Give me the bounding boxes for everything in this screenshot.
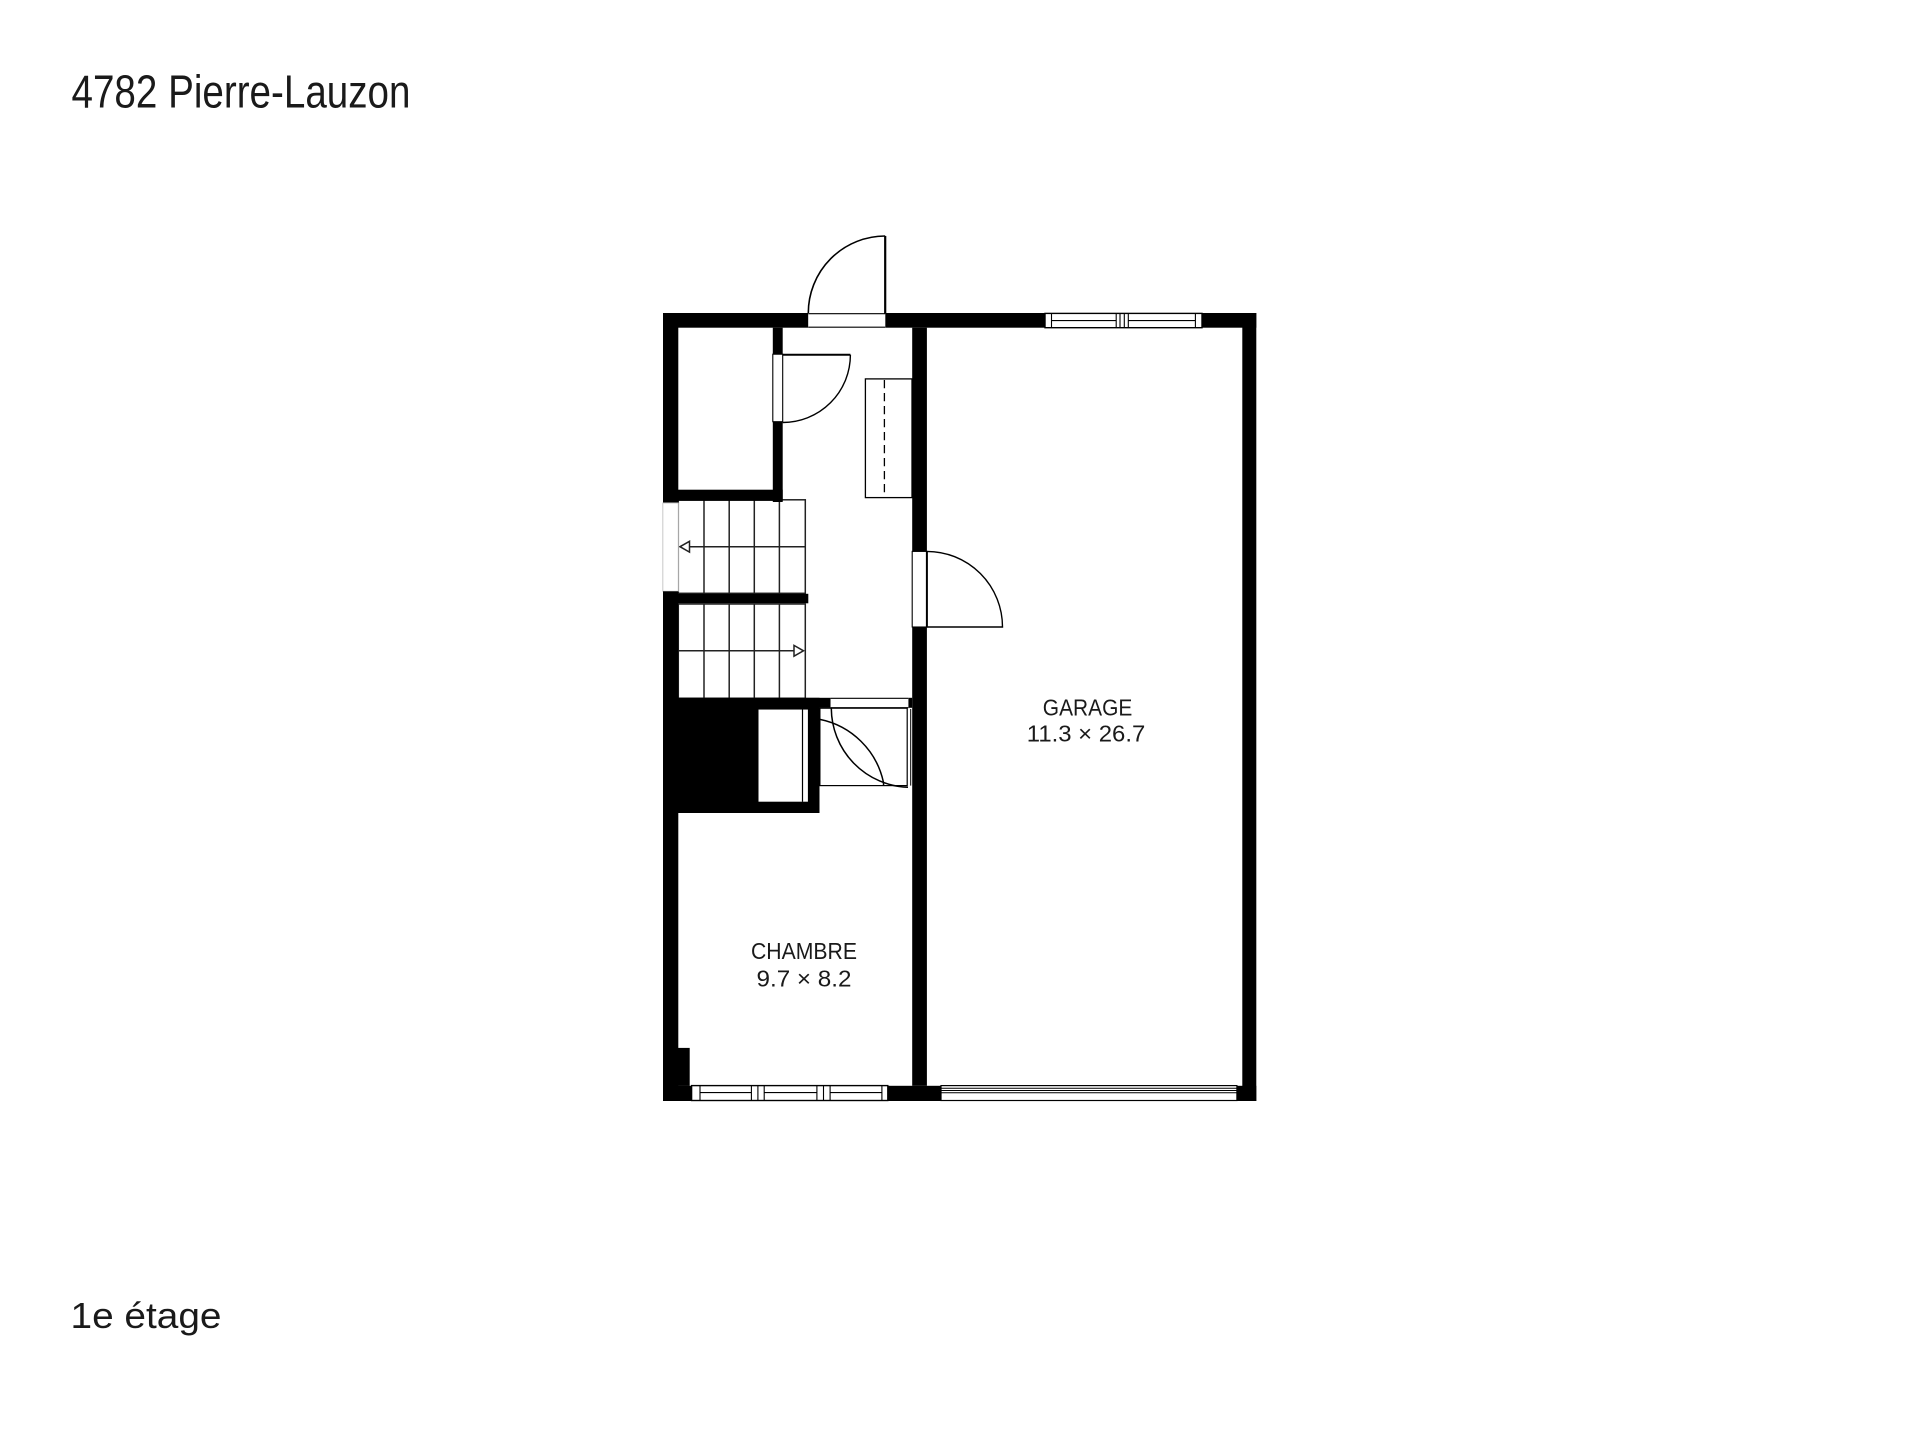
svg-text:4782 Pierre-Lauzon: 4782 Pierre-Lauzon (72, 66, 411, 118)
svg-text:11.3 × 26.7: 11.3 × 26.7 (1027, 720, 1146, 746)
svg-text:1e étage: 1e étage (71, 1295, 222, 1336)
svg-text:9.7 × 8.2: 9.7 × 8.2 (757, 966, 852, 992)
svg-text:CHAMBRE: CHAMBRE (751, 938, 857, 964)
svg-text:GARAGE: GARAGE (1043, 695, 1133, 721)
